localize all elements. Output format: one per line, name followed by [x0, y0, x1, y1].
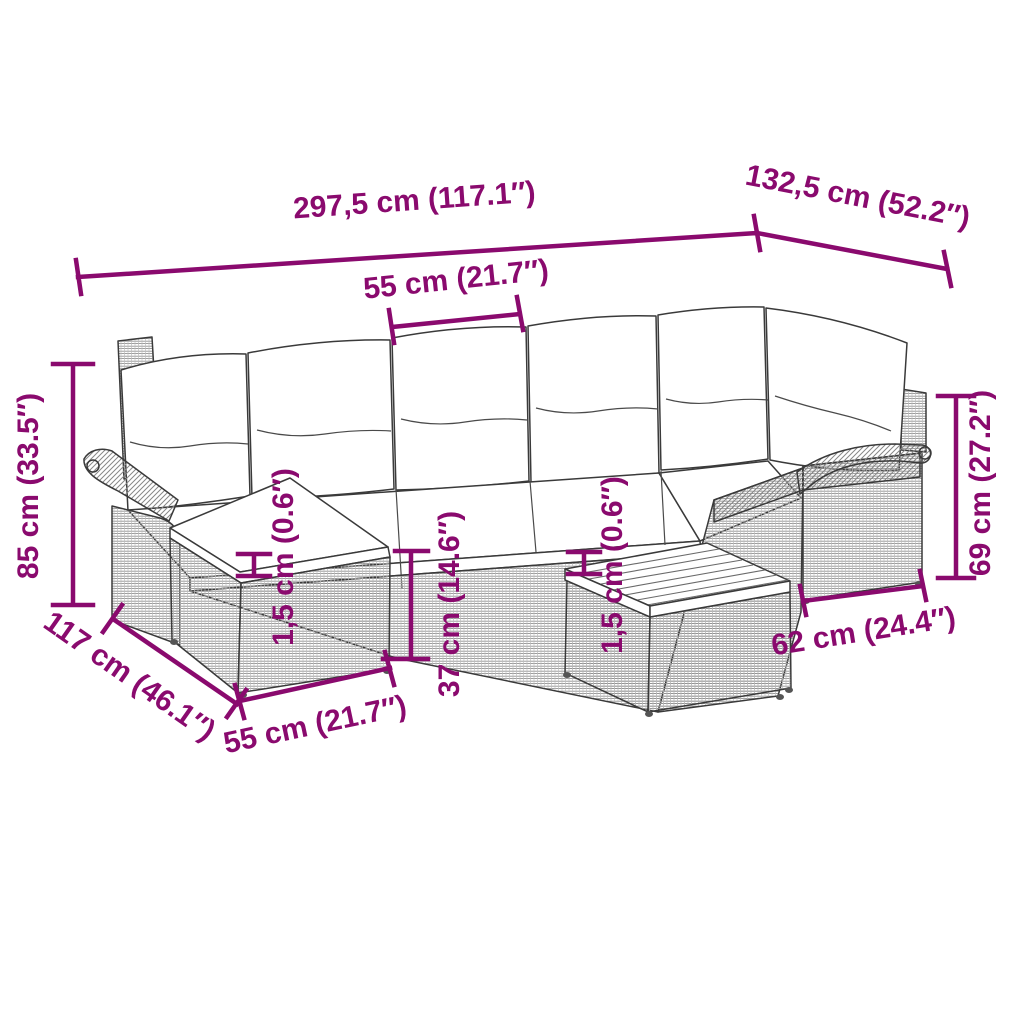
dim-line: [53, 364, 93, 605]
dim-label: 297,5 cm (117.1″): [292, 176, 537, 226]
dim-label: 55 cm (21.7″): [362, 253, 551, 305]
dim-right-depth: 132,5 cm (52.2″): [743, 159, 973, 286]
footstool-foot: [170, 639, 178, 645]
diagram-canvas: 297,5 cm (117.1″) 132,5 cm (52.2″) 55 cm…: [0, 0, 1024, 1024]
dim-label: 69 cm (27.2″): [964, 390, 997, 576]
back-pillow: [658, 307, 768, 470]
back-post-right: [901, 389, 926, 452]
dim-line: [757, 233, 951, 286]
dim-label: 37 cm (14.6″): [433, 511, 466, 697]
dim-label: 1,5 cm (0.6″): [267, 468, 300, 646]
table-foot: [645, 711, 653, 717]
table-foot: [563, 672, 571, 678]
dim-label: 85 cm (33.5″): [12, 393, 45, 579]
back-pillow: [528, 316, 659, 482]
sofa-foot: [776, 694, 784, 700]
dim-label: 132,5 cm (52.2″): [743, 159, 973, 235]
dim-backrest-height: 69 cm (27.2″): [938, 390, 997, 578]
table-foot: [785, 687, 793, 693]
dim-label: 1,5 cm (0.6″): [596, 476, 629, 654]
dim-overall-height: 85 cm (33.5″): [12, 364, 93, 605]
back-pillow: [392, 327, 529, 490]
product-dimension-diagram: 297,5 cm (117.1″) 132,5 cm (52.2″) 55 cm…: [0, 0, 1024, 1024]
